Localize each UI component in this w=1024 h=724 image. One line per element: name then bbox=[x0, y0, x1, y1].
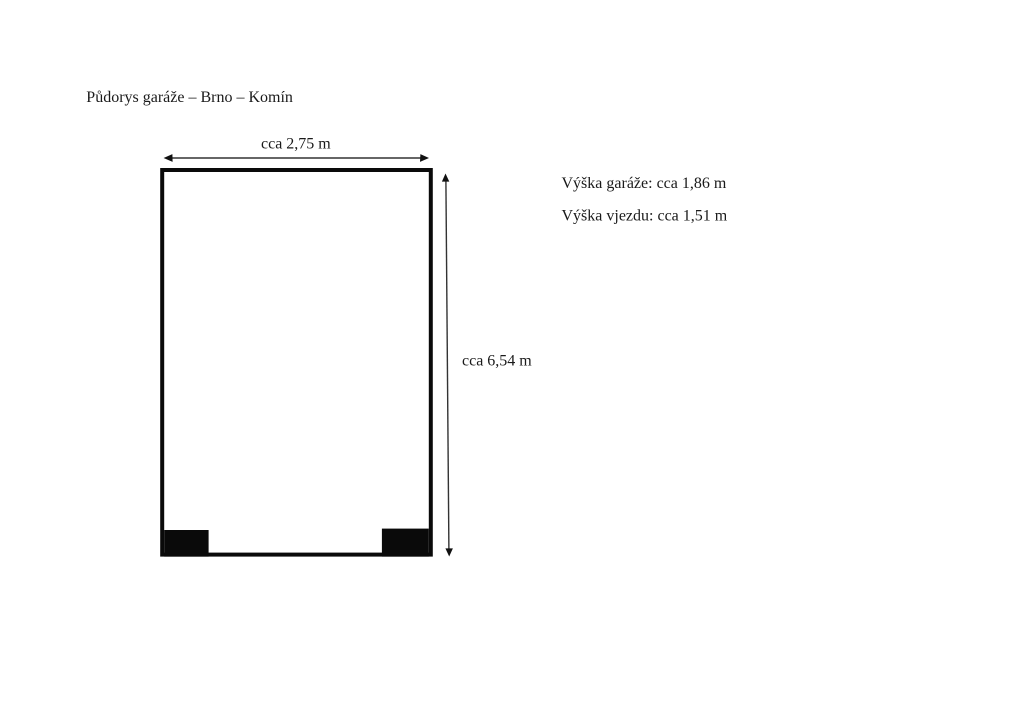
svg-text:cca 2,75 m: cca 2,75 m bbox=[261, 135, 331, 152]
svg-text:Výška vjezdu: cca 1,51 m: Výška vjezdu: cca 1,51 m bbox=[562, 207, 728, 224]
svg-text:Půdorys garáže – Brno – Komín: Půdorys garáže – Brno – Komín bbox=[86, 89, 293, 106]
svg-text:cca 6,54 m: cca 6,54 m bbox=[462, 352, 532, 369]
svg-text:Výška garáže: cca 1,86 m: Výška garáže: cca 1,86 m bbox=[562, 175, 727, 192]
